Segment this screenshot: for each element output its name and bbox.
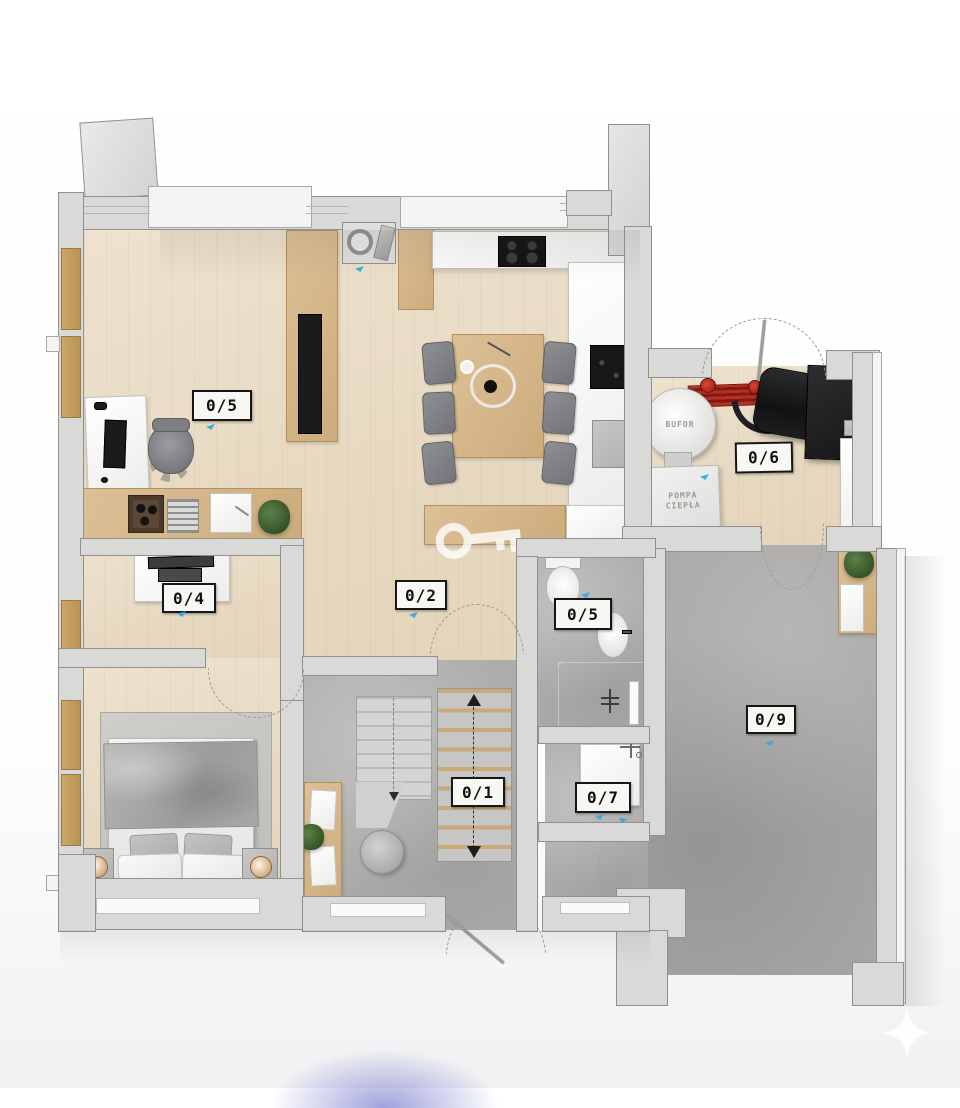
main-staircase [437,688,512,862]
buffer-tank: BUFOR [644,388,716,460]
dining-chair [541,440,577,485]
wall-wardrobe-bottom [58,648,206,668]
wall-office-wardrobe [80,538,304,556]
ventilation-unit [342,222,396,264]
shower-tray [629,681,639,725]
vent-vane [373,225,396,262]
wine-bottles-icon [133,500,159,528]
stairs-arrow-down-icon [467,846,481,858]
floorplan-render-page: { "scene": { "kind": "3d-floor-plan-top-… [0,0,960,1088]
red-valve-icon [700,378,716,393]
room-label-laundry-text: 0/7 [587,788,619,807]
sideboard-plant [258,500,290,534]
desk-lamp [94,402,107,410]
cooktop [498,236,546,267]
dining-chair [421,341,457,386]
wall-bath-laundry [538,726,650,744]
room-label-office-text: 0/5 [206,396,238,415]
wall-garage-left-stub-lower [616,930,668,1006]
wall-bathroom-top [516,538,656,558]
wall-bathroom-left [516,556,538,932]
room-label-garage-text: 0/9 [755,710,787,729]
window-office [61,336,81,418]
wall-laundry-bottom [538,822,650,842]
room-label-living-text: 0/2 [405,586,437,605]
buffer-tank-label: BUFOR [665,420,694,429]
stairs-arrow-up-icon [467,694,481,706]
desk-monitor [103,420,127,469]
basement-stairs-cut [356,782,432,828]
room-label-utility-text: 0/6 [748,448,780,468]
wall-utility-right-cap [872,352,882,548]
wine-rack [128,495,164,533]
connector-rail [560,902,630,914]
bed-blanket [103,741,258,830]
console-cushion [309,845,337,886]
wall-bedroom-right [280,700,304,906]
shower-fixture-icon [599,689,623,715]
heat-pump-label-line2: CIEPŁA [666,500,701,510]
wall-garage-bottom-corner [852,962,904,1006]
window-bedroom [61,774,81,846]
chimney-top-left [79,118,158,201]
garage-console-doors [840,584,864,632]
wall-right-main [624,226,652,552]
wall-bath-garage [643,548,666,836]
room-label-office: 0/5 [192,390,252,421]
wall-top-cap [400,196,568,228]
wall-top-rail [84,206,150,214]
wall-top-rail [306,206,348,214]
window-office [61,248,81,330]
wall-utility-bottom-right [826,526,882,552]
chimney-top-right-wing [566,190,612,216]
room-label-wardrobe: 0/4 [162,583,216,613]
room-label-bathroom-text: 0/5 [567,605,599,624]
room-label-wardrobe-text: 0/4 [173,589,205,608]
garage-plant [844,548,874,578]
stairs-arrow-down-icon [389,792,399,801]
building-shadow-right [904,556,946,1006]
sideboard-grill [167,499,199,533]
fan-icon [347,229,373,255]
window-bedroom [61,700,81,770]
desk-mouse [101,477,108,483]
heat-pump-label-line1: POMPA [668,490,697,500]
room-label-utility: 0/6 [735,441,794,473]
basement-stairs-rail [393,698,394,794]
dresser-tv [148,555,214,569]
room-label-garage: 0/9 [746,705,796,734]
dining-chair [541,341,577,386]
tv-screen [298,314,322,434]
wall-corner-bottom-left [58,854,96,932]
sink-tap-icon [622,630,632,634]
stairs-direction-line [473,702,474,848]
window-sill [46,336,60,352]
kitchen-tall-cabinet [398,228,434,310]
room-label-laundry: 0/7 [575,782,631,813]
building-shadow-bottom [60,930,650,964]
decor-blob [270,1048,500,1108]
chair-back [152,418,190,432]
floorplan-scene: BUFOR POMPA CIEPŁA [0,0,960,1088]
hall-pouf [360,830,404,874]
wall-top-cap [148,186,312,228]
dining-chair [542,391,577,435]
bed [108,738,254,898]
bedside-lamp-icon [250,856,272,878]
wall-garage-right-cap [896,548,906,1004]
wall-living-hall [302,656,438,676]
dresser-tv-screen [158,568,202,582]
window-bedroom-bottom [96,898,260,914]
room-label-living: 0/2 [395,580,447,610]
office-chair [142,414,198,490]
room-label-bathroom: 0/5 [554,598,612,630]
dining-chair [422,391,456,435]
room-label-hall: 0/1 [451,777,505,807]
sparkle-icon [882,1008,932,1058]
pendant-lamp-icon [458,348,528,408]
dining-chair [421,440,457,485]
window-hall-bottom [330,903,426,917]
heat-pump-indoor-unit: POMPA CIEPŁA [645,465,721,536]
room-label-hall-text: 0/1 [462,783,494,802]
built-in-oven [590,345,628,389]
